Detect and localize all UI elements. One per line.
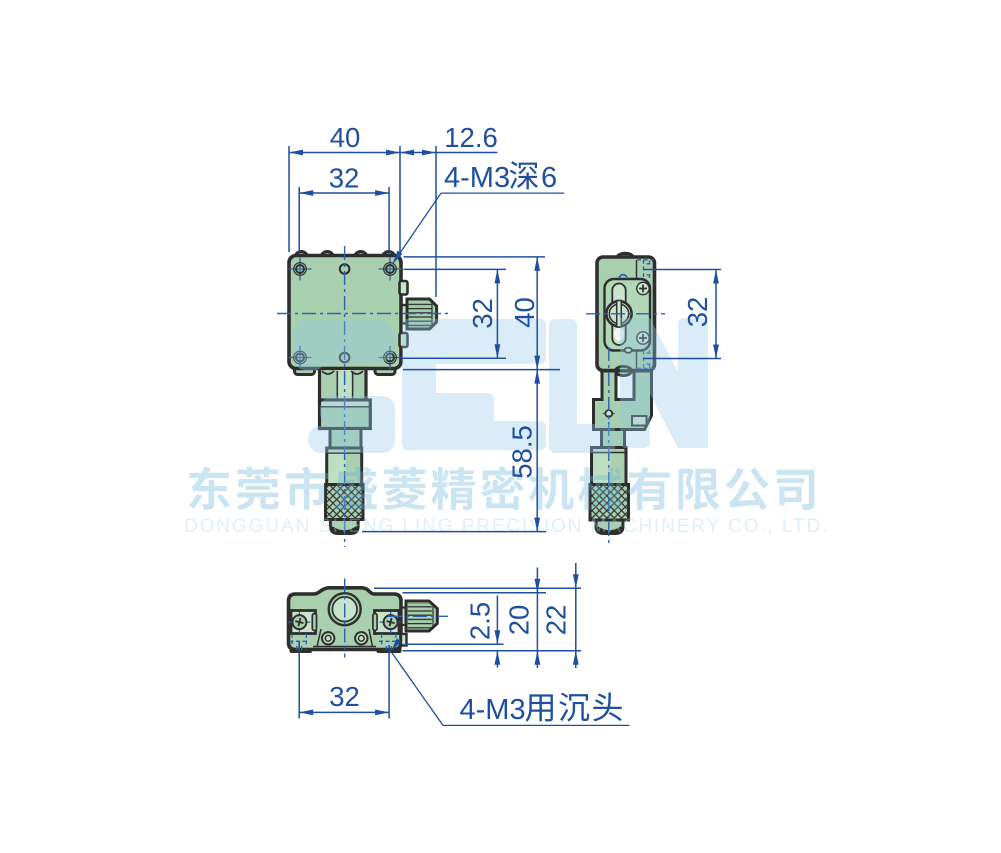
svg-text:4-M3: 4-M3 bbox=[460, 694, 526, 726]
svg-text:DONGGUAN SHENG LING PRECISION: DONGGUAN SHENG LING PRECISION MACHINERY … bbox=[184, 516, 829, 537]
svg-text:32: 32 bbox=[682, 297, 713, 328]
svg-text:4-M3: 4-M3 bbox=[444, 162, 510, 194]
svg-text:20: 20 bbox=[504, 605, 535, 636]
svg-text:58.5: 58.5 bbox=[507, 425, 538, 479]
svg-text:32: 32 bbox=[329, 163, 360, 194]
svg-text:40: 40 bbox=[509, 297, 540, 328]
svg-text:40: 40 bbox=[330, 122, 361, 153]
svg-text:2.5: 2.5 bbox=[465, 602, 496, 640]
svg-text:22: 22 bbox=[541, 605, 572, 636]
svg-text:6: 6 bbox=[541, 162, 557, 194]
svg-text:32: 32 bbox=[467, 298, 498, 329]
svg-text:12.6: 12.6 bbox=[444, 122, 498, 153]
svg-text:32: 32 bbox=[329, 681, 360, 712]
